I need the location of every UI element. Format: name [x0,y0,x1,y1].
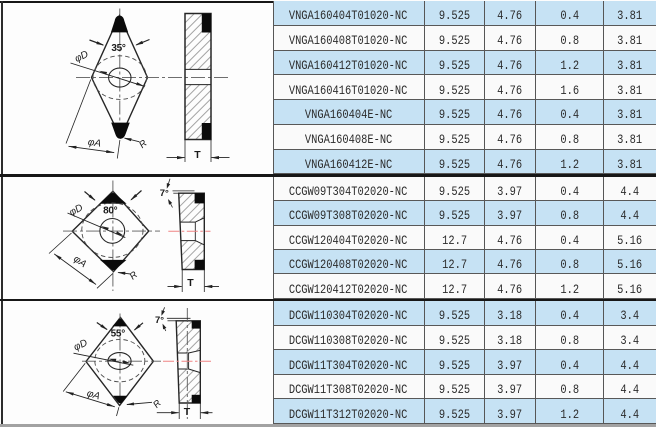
svg-text:φD: φD [73,49,90,65]
svg-text:7°: 7° [160,188,169,199]
svg-text:T: T [194,149,201,161]
svg-text:R: R [128,269,140,282]
svg-text:φD: φD [72,338,89,354]
svg-text:φD: φD [68,202,85,218]
svg-text:35°: 35° [111,43,126,54]
svg-text:T: T [187,277,194,289]
svg-text:φA: φA [87,137,102,150]
svg-text:T: T [184,406,191,418]
svg-text:R: R [151,398,164,411]
svg-text:80°: 80° [103,206,118,217]
svg-text:φA: φA [85,388,101,402]
svg-text:R: R [137,138,149,151]
svg-text:55°: 55° [111,329,126,340]
